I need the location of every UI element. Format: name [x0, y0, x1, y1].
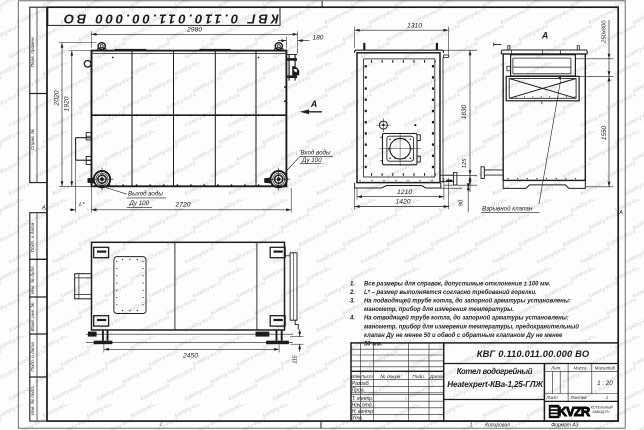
- svg-text:2450: 2450: [182, 353, 198, 360]
- svg-text:2.: 2.: [349, 290, 355, 296]
- svg-text:50 мм.: 50 мм.: [364, 342, 383, 348]
- svg-text:180: 180: [313, 35, 324, 42]
- svg-text:L*: L*: [79, 202, 85, 208]
- svg-text:115: 115: [292, 355, 298, 363]
- svg-text:клапан Ду не менее 50 и обвод: клапан Ду не менее 50 и обвод с обратным…: [364, 332, 563, 339]
- svg-text:Подп. и дата: Подп. и дата: [30, 342, 35, 372]
- svg-text:На подводящей трубе котла, до: На подводящей трубе котла, до запорной а…: [364, 298, 571, 305]
- svg-text:125: 125: [462, 158, 468, 168]
- svg-text:Масштаб: Масштаб: [595, 365, 616, 370]
- svg-text:2980: 2980: [186, 26, 202, 33]
- svg-text:Инв. № подл.: Инв. № подл.: [30, 386, 35, 415]
- svg-text:Формат А3: Формат А3: [551, 423, 579, 429]
- svg-text:Heatexpert-КВа-1,25-ГЛЖ: Heatexpert-КВа-1,25-ГЛЖ: [447, 380, 543, 389]
- svg-text:L* – размер выполняется соглас: L* – размер выполняется согласно требова…: [364, 289, 537, 296]
- svg-text:2: 2: [159, 422, 163, 428]
- svg-text:Разраб.: Разраб.: [352, 381, 370, 387]
- svg-text:250х800: 250х800: [602, 20, 608, 44]
- svg-text:3.: 3.: [350, 299, 355, 305]
- svg-text:Т. контр.: Т. контр.: [352, 396, 374, 402]
- svg-text:1420: 1420: [395, 199, 410, 206]
- svg-text:КОТЕЛЬНЫЙ: КОТЕЛЬНЫЙ: [591, 405, 614, 409]
- svg-text:А: А: [41, 206, 46, 212]
- svg-text:Все размеры для справок, допус: Все размеры для справок, допустимые откл…: [364, 281, 551, 287]
- svg-text:1210: 1210: [397, 189, 412, 196]
- svg-text:Взрывной клапан: Взрывной клапан: [482, 206, 533, 213]
- svg-text:90: 90: [459, 199, 465, 206]
- svg-text:Лист: Лист: [360, 374, 373, 380]
- svg-text:1830: 1830: [461, 104, 468, 119]
- svg-text:Утв.: Утв.: [352, 416, 363, 422]
- svg-text:1: 1: [470, 423, 473, 429]
- svg-text:Выход воды: Выход воды: [128, 191, 163, 198]
- svg-text:2020: 2020: [54, 90, 61, 106]
- svg-text:4.: 4.: [349, 316, 355, 322]
- svg-text:манометр, прибор для измерения: манометр, прибор для измерения температу…: [364, 323, 579, 330]
- svg-text:ЗАВОД.РУ: ЗАВОД.РУ: [592, 410, 610, 414]
- svg-text:1310: 1310: [407, 22, 422, 29]
- svg-text:Подп. и дата: Подп. и дата: [30, 222, 35, 252]
- svg-text:KVZR: KVZR: [558, 404, 590, 419]
- svg-text:Ду 100: Ду 100: [129, 200, 150, 207]
- svg-text:Инв. № дубл.: Инв. № дубл.: [30, 265, 35, 294]
- svg-text:Нач.отд.: Нач.отд.: [352, 403, 373, 409]
- svg-text:1.: 1.: [350, 281, 355, 287]
- svg-text:1920: 1920: [64, 96, 71, 111]
- svg-text:Лист: Лист: [545, 395, 558, 400]
- svg-text:Н. контр.: Н. контр.: [352, 409, 375, 415]
- svg-text:КВГ 0.110.011.00.000 ВО: КВГ 0.110.011.00.000 ВО: [61, 12, 279, 27]
- svg-text:Листов: Листов: [570, 395, 588, 400]
- svg-text:№ докум.: № докум.: [380, 374, 401, 380]
- svg-text:А: А: [541, 30, 548, 40]
- svg-text:На отводящей трубе котла, до з: На отводящей трубе котла, до запорной ар…: [364, 315, 569, 322]
- svg-text:1550: 1550: [601, 125, 608, 140]
- svg-text:Масса: Масса: [574, 365, 588, 370]
- svg-text:Подп.: Подп.: [412, 374, 425, 380]
- svg-text:манометр, прибор для измерения: манометр, прибор для измерения температу…: [364, 306, 514, 313]
- svg-text:Вход воды: Вход воды: [301, 150, 331, 157]
- svg-text:1 : 20: 1 : 20: [597, 380, 613, 387]
- svg-text:КВГ 0.110.011.00.000 ВО: КВГ 0.110.011.00.000 ВО: [477, 349, 590, 359]
- svg-text:Пров.: Пров.: [352, 388, 365, 394]
- svg-text:Взам. инв. №: Взам. инв. №: [30, 302, 35, 331]
- svg-text:Ду 100: Ду 100: [301, 157, 322, 164]
- svg-text:А: А: [310, 99, 317, 109]
- svg-text:Дата: Дата: [429, 374, 443, 380]
- svg-text:А: А: [618, 210, 623, 216]
- svg-text:2720: 2720: [174, 202, 190, 209]
- svg-text:Изм: Изм: [351, 374, 361, 380]
- svg-text:Перв. примен.: Перв. примен.: [30, 36, 35, 67]
- svg-text:Справ. №: Справ. №: [30, 129, 35, 150]
- svg-text:Котел водогрейный: Котел водогрейный: [457, 367, 533, 376]
- svg-text:Лит.: Лит.: [550, 365, 561, 370]
- svg-text:Копировал: Копировал: [485, 423, 510, 429]
